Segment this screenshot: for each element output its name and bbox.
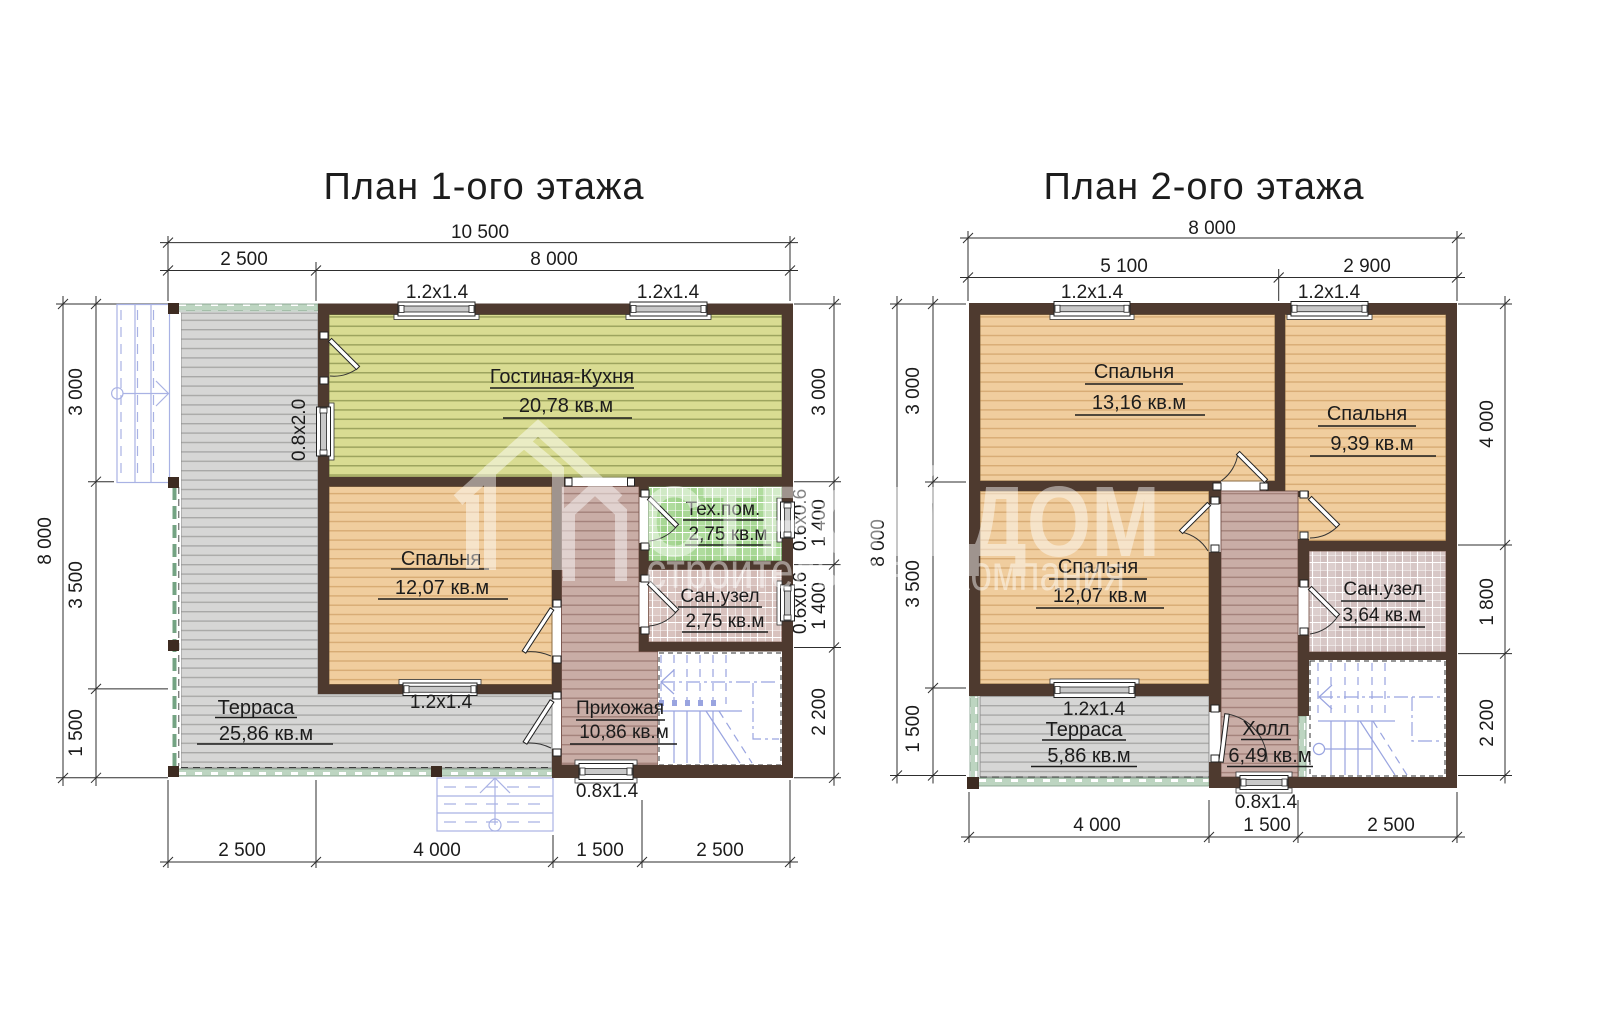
svg-text:10,86 кв.м: 10,86 кв.м — [579, 722, 669, 743]
svg-text:1.2х1.4: 1.2х1.4 — [1061, 282, 1124, 303]
svg-text:4 000: 4 000 — [1073, 815, 1121, 836]
svg-text:1.2х1.4: 1.2х1.4 — [406, 282, 469, 303]
svg-text:1 500: 1 500 — [903, 705, 924, 753]
svg-text:2 200: 2 200 — [809, 688, 830, 736]
svg-text:1 500: 1 500 — [576, 840, 624, 861]
svg-text:2 900: 2 900 — [1343, 256, 1391, 277]
svg-text:1 500: 1 500 — [1243, 815, 1291, 836]
svg-text:1.2х1.4: 1.2х1.4 — [1063, 699, 1126, 720]
svg-text:5,86 кв.м: 5,86 кв.м — [1047, 745, 1130, 767]
svg-text:2,75 кв.м: 2,75 кв.м — [685, 611, 764, 632]
svg-text:9,39 кв.м: 9,39 кв.м — [1330, 433, 1413, 455]
svg-text:2 200: 2 200 — [1477, 699, 1498, 747]
svg-text:2 500: 2 500 — [218, 840, 266, 861]
svg-text:0.8х2.0: 0.8х2.0 — [289, 399, 310, 461]
svg-text:8 000: 8 000 — [530, 249, 578, 270]
svg-text:Терраса: Терраса — [1046, 719, 1124, 741]
svg-text:компания: компания — [953, 545, 1125, 601]
svg-text:Терраса: Терраса — [218, 697, 296, 719]
svg-text:4 000: 4 000 — [413, 840, 461, 861]
svg-text:2 500: 2 500 — [220, 249, 268, 270]
svg-text:8 000: 8 000 — [1188, 218, 1236, 239]
svg-text:План 1-ого этажа: План 1-ого этажа — [323, 166, 644, 208]
svg-text:Гостиная-Кухня: Гостиная-Кухня — [490, 366, 634, 388]
svg-text:1 800: 1 800 — [1477, 578, 1498, 626]
svg-text:Спальня: Спальня — [1327, 403, 1407, 425]
svg-text:Спальня: Спальня — [1094, 361, 1174, 383]
svg-text:12,07 кв.м: 12,07 кв.м — [395, 577, 489, 599]
svg-text:0.8х1.4: 0.8х1.4 — [1235, 792, 1298, 813]
svg-text:3 000: 3 000 — [809, 368, 830, 416]
svg-text:строительная: строительная — [646, 543, 904, 599]
svg-text:1.2х1.4: 1.2х1.4 — [637, 282, 700, 303]
svg-text:0.8х1.4: 0.8х1.4 — [576, 781, 639, 802]
svg-text:13,16 кв.м: 13,16 кв.м — [1092, 392, 1186, 414]
svg-text:3 500: 3 500 — [66, 561, 87, 609]
svg-text:25,86 кв.м: 25,86 кв.м — [219, 723, 313, 745]
svg-text:2 500: 2 500 — [696, 840, 744, 861]
svg-text:2 500: 2 500 — [1367, 815, 1415, 836]
svg-text:1.2х1.4: 1.2х1.4 — [1298, 282, 1361, 303]
svg-text:4 000: 4 000 — [1477, 400, 1498, 448]
svg-text:3 000: 3 000 — [66, 368, 87, 416]
svg-text:20,78 кв.м: 20,78 кв.м — [519, 395, 613, 417]
svg-text:1 500: 1 500 — [66, 709, 87, 757]
svg-text:3,64 кв.м: 3,64 кв.м — [1342, 605, 1421, 626]
svg-text:Прихожая: Прихожая — [576, 698, 664, 719]
svg-text:План 2-ого этажа: План 2-ого этажа — [1043, 166, 1364, 208]
svg-text:Сан.узел: Сан.узел — [1343, 579, 1422, 600]
svg-text:10 500: 10 500 — [451, 222, 509, 243]
svg-text:6,49 кв.м: 6,49 кв.м — [1228, 745, 1311, 767]
svg-text:Холл: Холл — [1242, 718, 1289, 740]
svg-text:3 000: 3 000 — [903, 367, 924, 415]
svg-text:1.2х1.4: 1.2х1.4 — [410, 692, 473, 713]
svg-text:8 000: 8 000 — [35, 517, 56, 565]
svg-text:5 100: 5 100 — [1100, 256, 1148, 277]
